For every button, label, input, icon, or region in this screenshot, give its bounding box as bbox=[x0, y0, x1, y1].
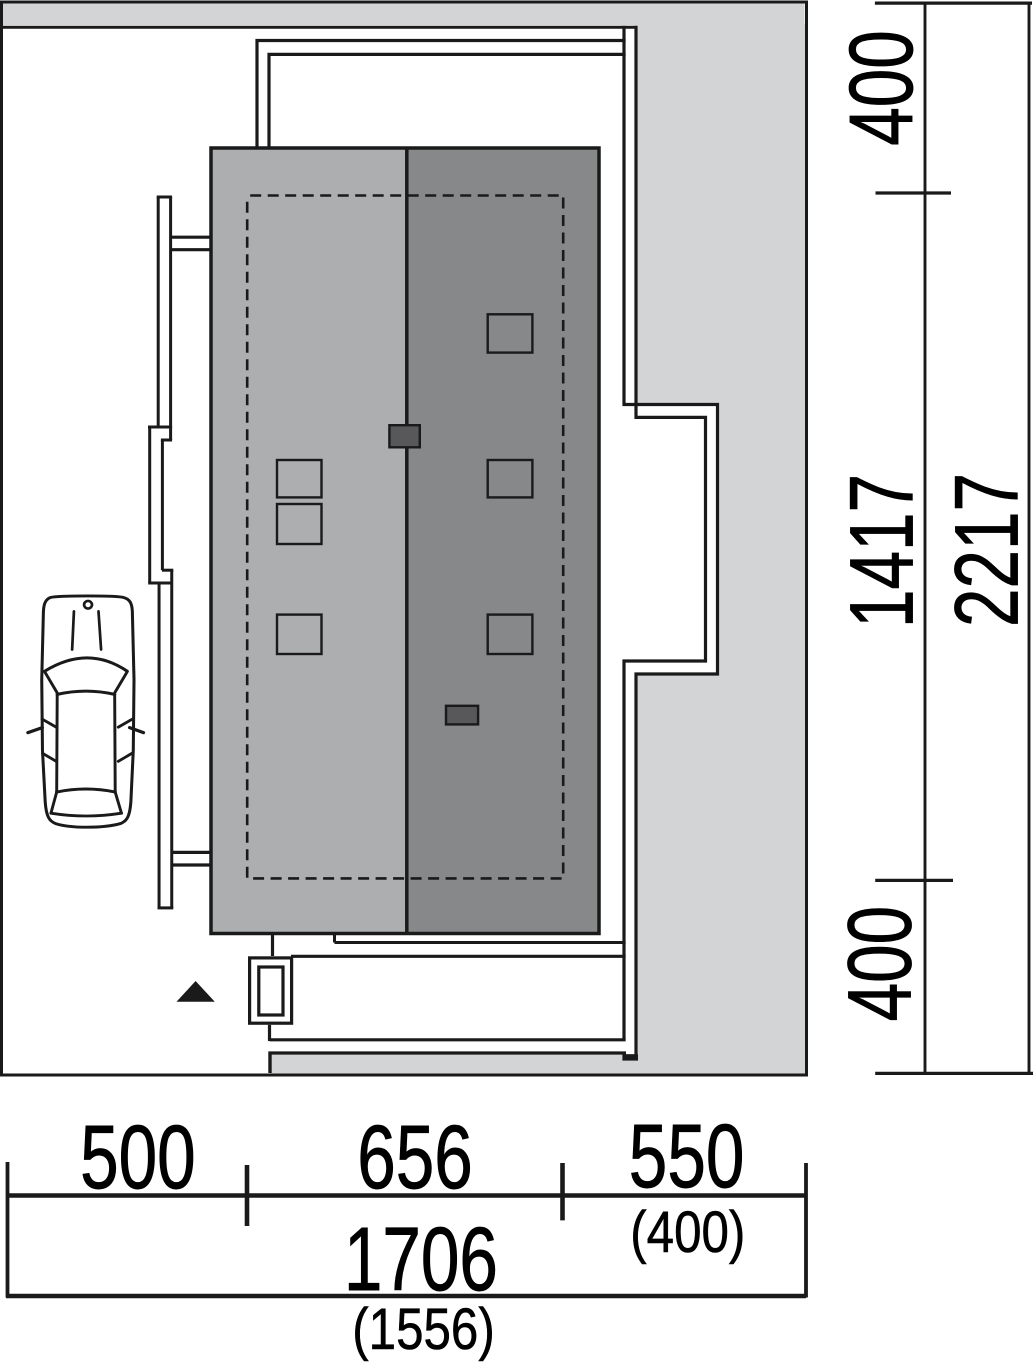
svg-text:(400): (400) bbox=[630, 1200, 745, 1265]
svg-text:2217: 2217 bbox=[937, 473, 1035, 627]
svg-text:400: 400 bbox=[831, 30, 932, 146]
svg-text:550: 550 bbox=[629, 1106, 745, 1207]
svg-text:(1556): (1556) bbox=[352, 1297, 494, 1362]
svg-text:656: 656 bbox=[357, 1107, 473, 1208]
svg-text:500: 500 bbox=[80, 1107, 196, 1208]
svg-text:400: 400 bbox=[830, 906, 931, 1022]
svg-text:1706: 1706 bbox=[344, 1209, 498, 1310]
svg-text:1417: 1417 bbox=[832, 474, 933, 628]
